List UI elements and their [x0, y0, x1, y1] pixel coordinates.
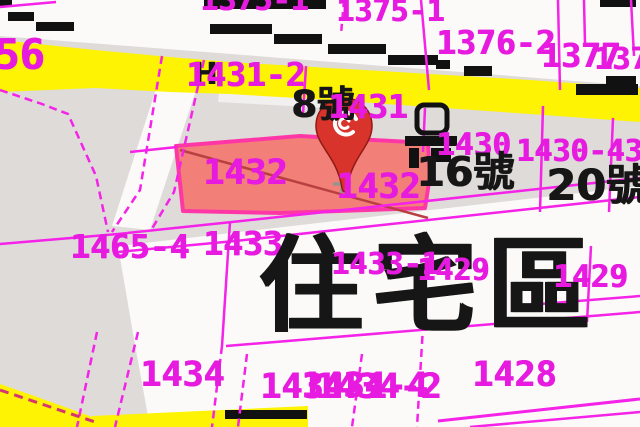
label-layer: 1375-11375-1561376-213771377-2H1431-28號1…: [0, 0, 640, 427]
parcel-label-1429: 1429: [553, 262, 628, 293]
parcel-label-1434-2: 1434-2: [315, 370, 441, 405]
parcel-label-56: 56: [0, 34, 45, 76]
parcel-label-1429: 1429: [417, 256, 489, 286]
parcel-label-1430: 1430: [436, 130, 511, 161]
parcel-label-1433: 1433: [203, 227, 282, 260]
parcel-label-8號: 8號: [291, 86, 354, 123]
parcel-label-1431: 1431: [328, 90, 407, 123]
parcel-label-1376-2: 1376-2: [436, 26, 555, 59]
parcel-label-1375-1: 1375-1: [336, 0, 444, 27]
parcel-label-1431-2: 1431-2: [186, 58, 305, 91]
parcel-label-H: H: [192, 60, 217, 90]
parcel-label-1432: 1432: [336, 170, 420, 205]
parcel-label-1433-1: 1433-1: [331, 250, 439, 280]
parcel-label-1434-1: 1434-1: [260, 370, 386, 405]
parcel-label-1375-1: 1375-1: [200, 0, 308, 16]
parcel-label-16號: 16號: [416, 152, 514, 193]
parcel-label-1377-2: 1377-2: [594, 45, 640, 75]
parcel-label-1465-4: 1465-4: [70, 230, 189, 263]
parcel-label-20號: 20號: [546, 165, 640, 208]
zone-label: 住宅區: [258, 234, 600, 338]
parcel-label-1434-4: 1434-4: [301, 369, 427, 404]
parcel-label-1432: 1432: [203, 156, 287, 191]
parcel-label-1428: 1428: [472, 358, 556, 393]
parcel-label-1430-43: 1430-43: [516, 137, 640, 167]
parcel-label-1434: 1434: [140, 358, 224, 393]
parcel-label-1377: 1377: [541, 39, 620, 72]
map-container[interactable]: 住宅區: [0, 0, 640, 427]
